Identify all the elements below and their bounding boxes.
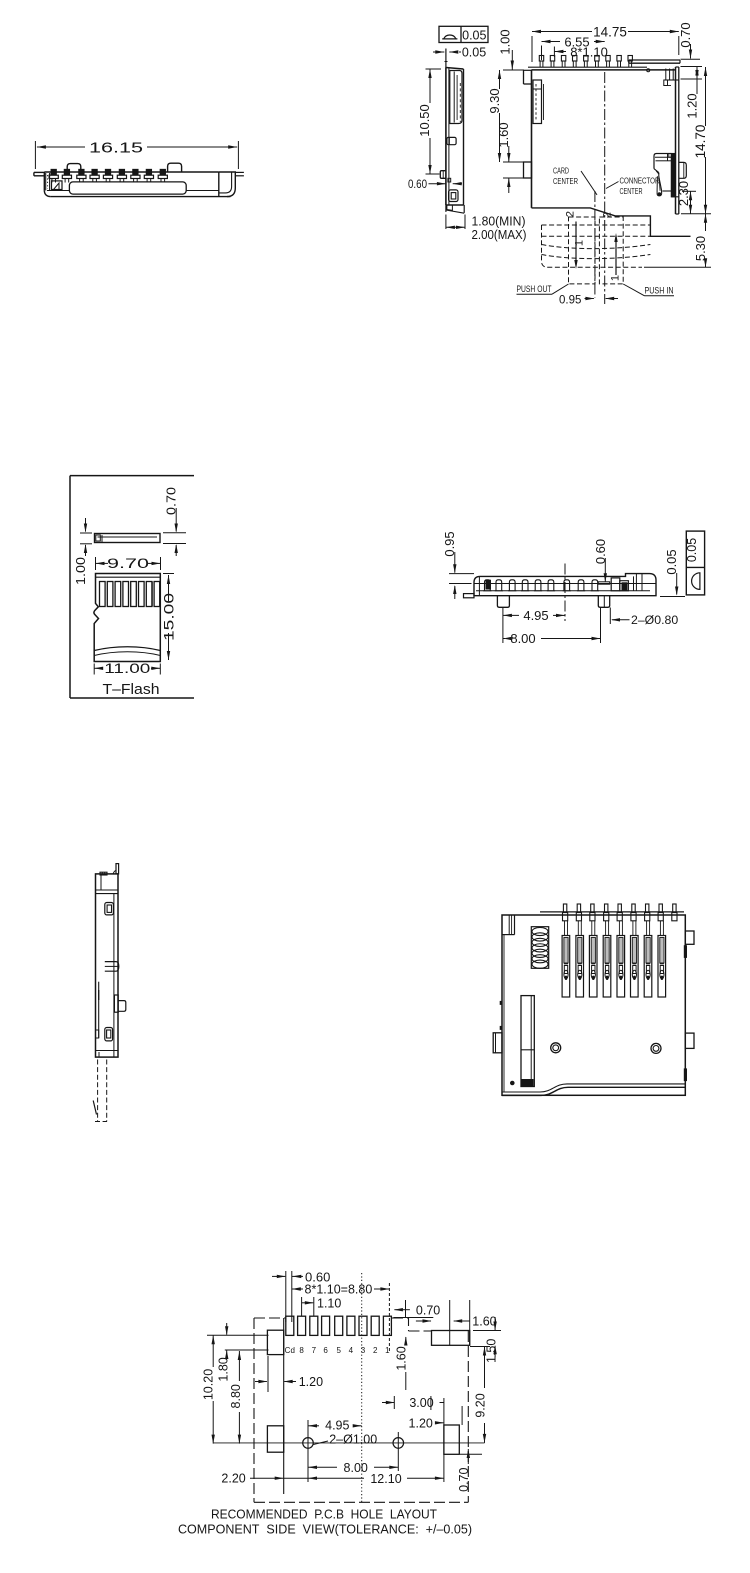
svg-text:2–Ø0.80: 2–Ø0.80 xyxy=(631,613,678,627)
svg-text:CENTER: CENTER xyxy=(553,176,578,186)
svg-text:11.00: 11.00 xyxy=(104,661,150,676)
svg-text:PUSH IN: PUSH IN xyxy=(645,286,674,296)
svg-text:2: 2 xyxy=(565,211,577,217)
svg-text:1.60: 1.60 xyxy=(496,122,511,147)
svg-text:T–Flash: T–Flash xyxy=(103,681,160,698)
svg-text:9.30: 9.30 xyxy=(487,88,502,113)
svg-text:1.00: 1.00 xyxy=(73,557,88,585)
svg-text:RECOMMENDED P.C.B HOLE LAYO: RECOMMENDED P.C.B HOLE LAYOUT xyxy=(211,1506,437,1521)
svg-text:0.70: 0.70 xyxy=(678,22,693,47)
svg-text:14.75: 14.75 xyxy=(593,25,627,40)
svg-text:0.60: 0.60 xyxy=(408,179,427,191)
svg-text:0.70: 0.70 xyxy=(457,1467,471,1491)
svg-text:14.70: 14.70 xyxy=(693,125,708,159)
svg-text:0.70: 0.70 xyxy=(416,1304,440,1318)
svg-text:CARD: CARD xyxy=(553,166,569,176)
svg-text:10.20: 10.20 xyxy=(202,1369,216,1400)
svg-text:1.00: 1.00 xyxy=(498,29,513,54)
svg-text:1.20: 1.20 xyxy=(684,93,699,118)
svg-text:15.00: 15.00 xyxy=(161,593,176,641)
svg-text:1.20: 1.20 xyxy=(409,1416,433,1430)
svg-text:2: 2 xyxy=(602,212,614,218)
svg-text:0.05: 0.05 xyxy=(685,538,699,562)
svg-text:2: 2 xyxy=(373,1346,378,1355)
svg-text:CONNECTOR: CONNECTOR xyxy=(620,176,660,186)
svg-text:16.15: 16.15 xyxy=(89,140,143,157)
svg-text:1.20: 1.20 xyxy=(299,1375,323,1389)
svg-text:8*1.10: 8*1.10 xyxy=(570,44,608,59)
svg-text:12.10: 12.10 xyxy=(370,1472,401,1486)
svg-text:3.00: 3.00 xyxy=(409,1396,433,1410)
svg-text:4.95: 4.95 xyxy=(523,608,548,623)
svg-text:8*1.10=8.80: 8*1.10=8.80 xyxy=(305,1283,373,1297)
svg-text:PUSH OUT: PUSH OUT xyxy=(517,284,552,294)
svg-text:0.95: 0.95 xyxy=(559,294,581,306)
svg-text:1.60: 1.60 xyxy=(472,1314,496,1328)
svg-text:7: 7 xyxy=(312,1346,317,1355)
svg-text:0.05: 0.05 xyxy=(664,549,679,574)
svg-text:8.80: 8.80 xyxy=(229,1384,243,1408)
svg-text:6: 6 xyxy=(323,1346,328,1355)
svg-text:5: 5 xyxy=(336,1346,341,1355)
svg-text:2–Ø1.00: 2–Ø1.00 xyxy=(329,1433,377,1447)
svg-text:2.00(MAX): 2.00(MAX) xyxy=(472,227,527,242)
svg-text:8: 8 xyxy=(299,1346,304,1355)
svg-text:CENTER: CENTER xyxy=(620,186,643,196)
svg-text:1: 1 xyxy=(610,275,622,281)
svg-text:9.70: 9.70 xyxy=(107,556,149,571)
svg-text:9.20: 9.20 xyxy=(473,1393,487,1417)
svg-text:Cd: Cd xyxy=(285,1346,295,1355)
svg-text:1.50: 1.50 xyxy=(485,1339,499,1363)
svg-text:0.05: 0.05 xyxy=(462,28,486,42)
svg-text:4: 4 xyxy=(349,1346,354,1355)
svg-text:1.10: 1.10 xyxy=(317,1297,341,1311)
svg-text:4.95: 4.95 xyxy=(325,1419,349,1433)
svg-text:COMPONENT SIDE VIEW(TOLERANC: COMPONENT SIDE VIEW(TOLERANCE: +/–0.05) xyxy=(178,1522,472,1537)
svg-text:3: 3 xyxy=(361,1346,366,1355)
svg-text:2.20: 2.20 xyxy=(221,1471,245,1485)
svg-text:1.80: 1.80 xyxy=(216,1357,230,1381)
svg-text:0.05: 0.05 xyxy=(462,46,486,60)
svg-text:10.50: 10.50 xyxy=(417,104,432,137)
svg-text:8.00: 8.00 xyxy=(510,631,535,646)
svg-text:1.60: 1.60 xyxy=(394,1346,408,1370)
svg-text:5.30: 5.30 xyxy=(693,236,708,261)
svg-text:8.00: 8.00 xyxy=(344,1461,368,1475)
svg-text:1: 1 xyxy=(574,240,586,246)
